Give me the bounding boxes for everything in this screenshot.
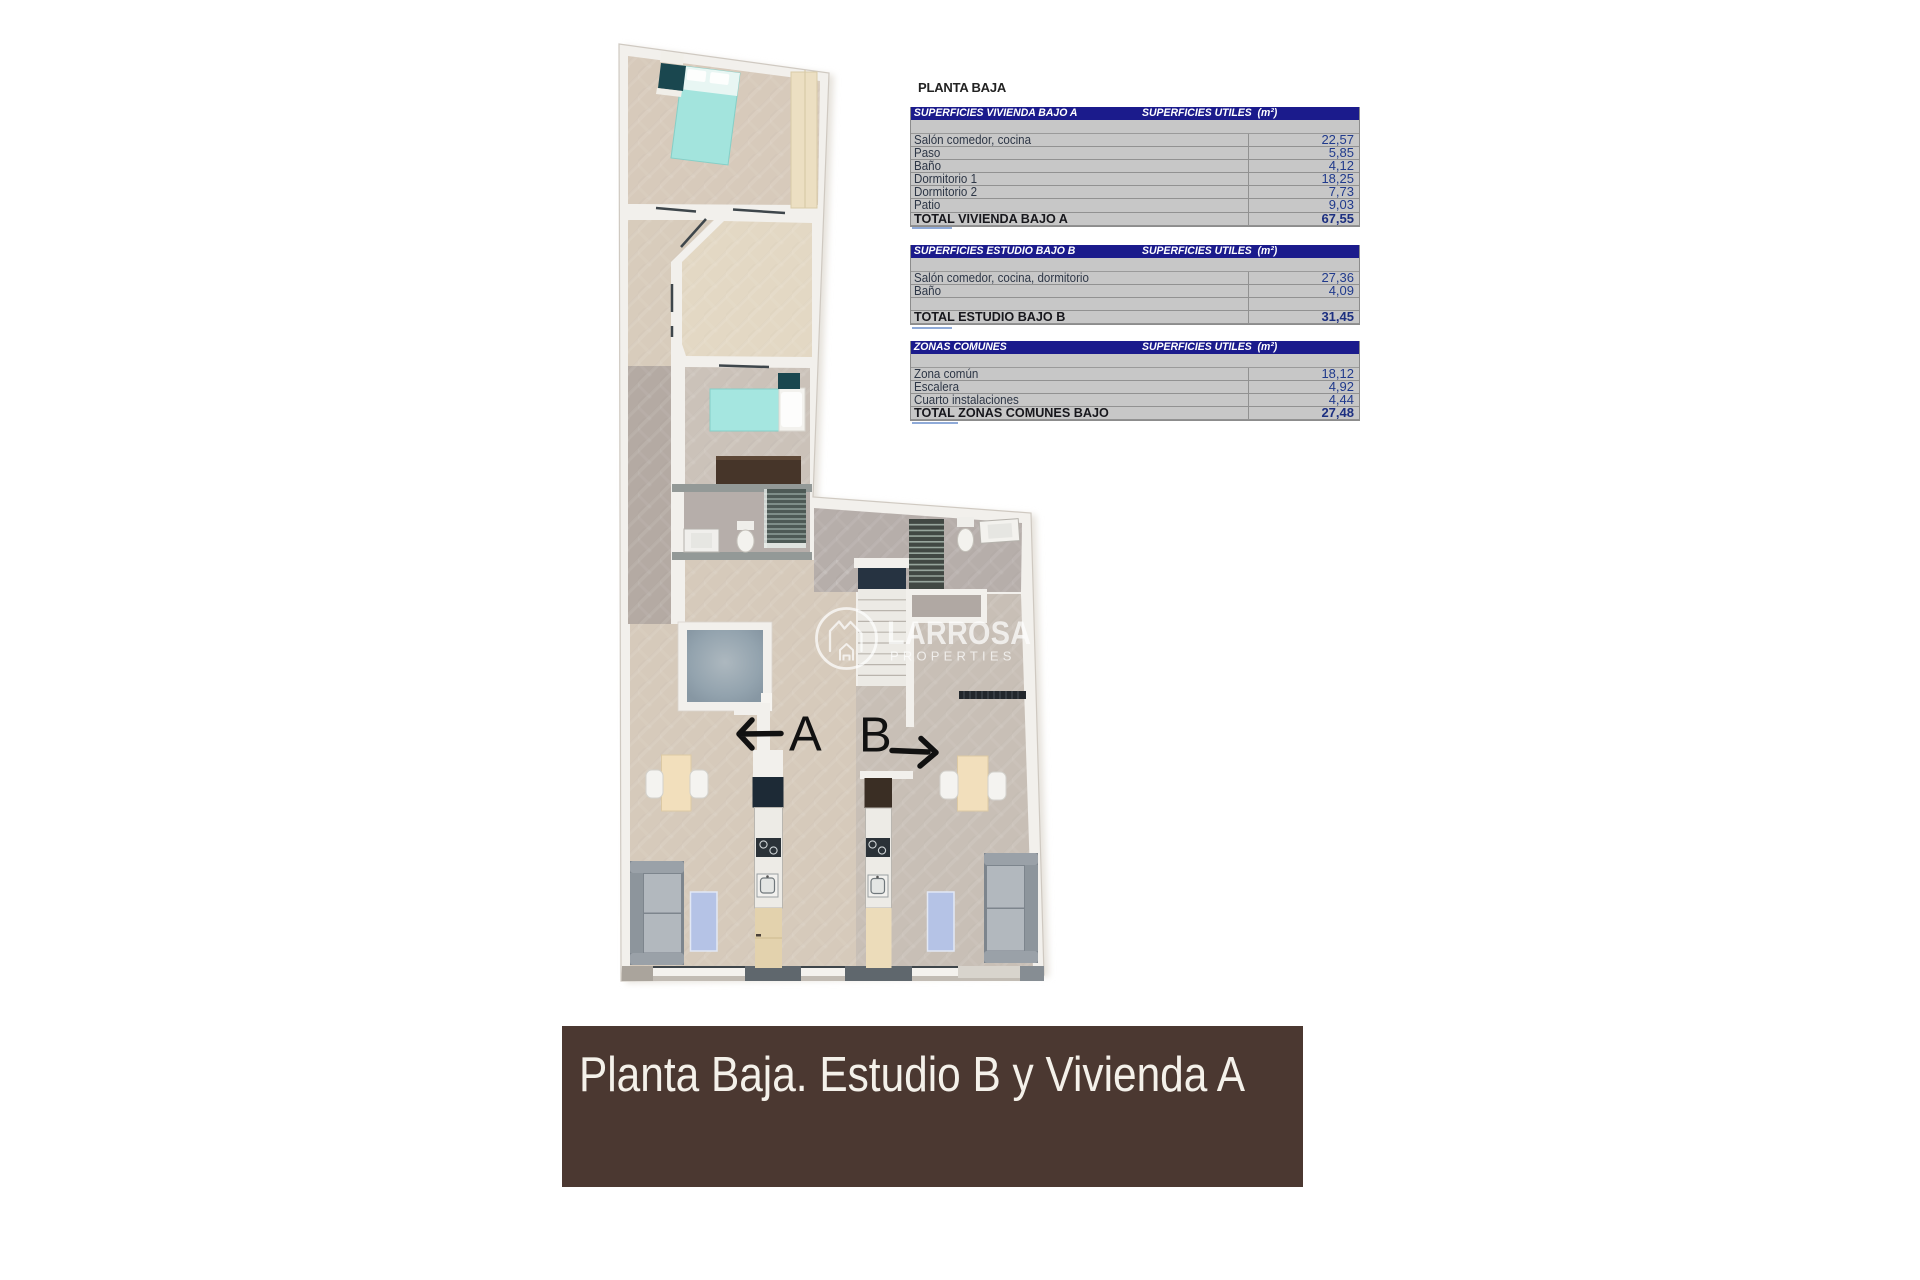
svg-text:PROPERTIES: PROPERTIES <box>890 649 1016 664</box>
svg-text:LARROSA: LARROSA <box>887 616 1031 652</box>
svg-text:B: B <box>859 709 892 763</box>
svg-text:A: A <box>789 708 822 762</box>
